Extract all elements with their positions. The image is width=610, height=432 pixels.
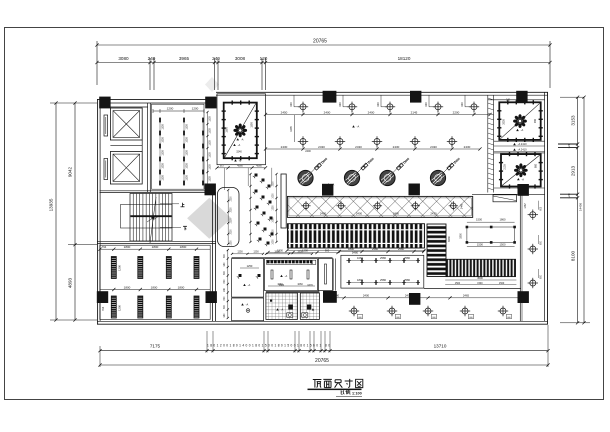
svg-text:1206: 1206 <box>118 305 122 311</box>
svg-text:2580: 2580 <box>372 247 378 251</box>
svg-text:1800: 1800 <box>277 248 283 252</box>
svg-text:1060: 1060 <box>357 256 363 260</box>
svg-text:240: 240 <box>148 56 156 61</box>
svg-text:2400: 2400 <box>305 150 311 153</box>
svg-text:1590: 1590 <box>226 127 229 133</box>
svg-text:1250: 1250 <box>253 251 259 254</box>
svg-text:-A: -A <box>332 183 335 187</box>
svg-text:880: 880 <box>535 163 538 168</box>
svg-text:6230: 6230 <box>448 236 451 242</box>
svg-text:1060: 1060 <box>297 283 303 286</box>
svg-text:2430: 2430 <box>430 145 437 149</box>
svg-text:120: 120 <box>567 143 571 148</box>
svg-text:18120: 18120 <box>398 56 411 61</box>
svg-text:2400: 2400 <box>320 211 327 215</box>
svg-text:2000: 2000 <box>503 119 506 125</box>
svg-text:1860: 1860 <box>500 218 506 222</box>
svg-text:2430: 2430 <box>281 145 288 149</box>
svg-text:1300: 1300 <box>209 164 212 170</box>
svg-text:600: 600 <box>377 102 380 107</box>
svg-text:2430: 2430 <box>464 145 471 149</box>
svg-text:1300: 1300 <box>209 152 212 158</box>
svg-text:20765: 20765 <box>313 39 327 45</box>
svg-text:-A: -A <box>246 303 249 307</box>
svg-text:600: 600 <box>425 102 428 107</box>
svg-text:900: 900 <box>325 248 330 252</box>
svg-text:2580: 2580 <box>404 256 410 260</box>
svg-text:2200: 2200 <box>453 110 460 114</box>
svg-text:1000: 1000 <box>273 193 275 199</box>
svg-text:1500: 1500 <box>476 218 482 222</box>
svg-text:600: 600 <box>461 102 464 107</box>
svg-text:8100: 8100 <box>571 250 576 261</box>
svg-text:1300: 1300 <box>209 128 212 134</box>
svg-text:2430: 2430 <box>318 145 325 149</box>
svg-text:3240: 3240 <box>236 151 242 154</box>
svg-text:1000: 1000 <box>273 217 275 223</box>
svg-text:917: 917 <box>220 164 225 168</box>
svg-text:3008: 3008 <box>235 56 246 61</box>
svg-text:2400: 2400 <box>324 110 331 114</box>
svg-text:9042: 9042 <box>68 166 73 177</box>
svg-text:1000: 1000 <box>186 137 189 143</box>
svg-text:1300: 1300 <box>273 205 275 211</box>
svg-text:1000: 1000 <box>273 239 275 245</box>
svg-text:1800: 1800 <box>460 233 463 239</box>
svg-text:2465: 2465 <box>463 293 470 297</box>
svg-text:1000: 1000 <box>162 137 165 143</box>
svg-text:1300: 1300 <box>162 124 165 130</box>
svg-text:4560: 4560 <box>256 164 262 168</box>
svg-text:-A: -A <box>248 283 251 287</box>
svg-text:120: 120 <box>260 56 268 61</box>
svg-text:2580: 2580 <box>398 247 404 251</box>
svg-text:2400: 2400 <box>393 211 400 215</box>
svg-text:1000: 1000 <box>186 163 189 169</box>
svg-text:1800: 1800 <box>178 285 185 289</box>
svg-text:-A: -A <box>357 125 360 129</box>
svg-text:2103: 2103 <box>504 164 507 170</box>
svg-text:7175: 7175 <box>150 344 161 349</box>
svg-text:1670: 1670 <box>307 284 313 287</box>
svg-text:1200: 1200 <box>302 248 308 252</box>
svg-text:2410: 2410 <box>517 97 523 100</box>
svg-text:1800: 1800 <box>124 245 131 249</box>
svg-text:1300: 1300 <box>209 176 212 182</box>
svg-text:1500: 1500 <box>477 282 483 285</box>
svg-text:2400: 2400 <box>356 211 363 215</box>
svg-text:2450: 2450 <box>281 110 288 114</box>
svg-text:1300: 1300 <box>273 181 275 187</box>
svg-text:1300: 1300 <box>186 124 189 130</box>
svg-text:2580: 2580 <box>380 256 386 260</box>
svg-text:4560: 4560 <box>237 164 243 168</box>
svg-text:-A: -A <box>241 137 244 141</box>
svg-text:1800: 1800 <box>348 247 354 251</box>
svg-text:900: 900 <box>534 118 537 123</box>
svg-text:-A: -A <box>521 128 524 132</box>
svg-text:1200: 1200 <box>192 107 199 111</box>
svg-text:1300: 1300 <box>186 150 189 156</box>
svg-text:3080: 3080 <box>118 56 129 61</box>
svg-text:14406: 14406 <box>579 202 583 211</box>
svg-text:1200: 1200 <box>167 107 174 111</box>
svg-text:2580: 2580 <box>380 278 386 282</box>
svg-text:3965: 3965 <box>179 56 190 61</box>
svg-text:1300: 1300 <box>162 150 165 156</box>
svg-text:1000: 1000 <box>162 163 165 169</box>
svg-text:794: 794 <box>102 245 107 249</box>
svg-text:2430: 2430 <box>355 145 362 149</box>
svg-text:600: 600 <box>339 102 342 107</box>
svg-text:1206: 1206 <box>118 265 122 271</box>
svg-text:1000: 1000 <box>230 207 232 213</box>
svg-text:1800: 1800 <box>357 278 363 282</box>
svg-text:1500: 1500 <box>500 242 506 246</box>
svg-text:1300: 1300 <box>186 175 189 181</box>
svg-text:3153: 3153 <box>571 115 576 126</box>
svg-text:2913: 2913 <box>571 165 576 176</box>
svg-text:-B: -B <box>239 159 242 163</box>
svg-text:2400: 2400 <box>405 293 412 297</box>
svg-text:1300: 1300 <box>209 116 212 122</box>
svg-text:120: 120 <box>567 193 571 198</box>
svg-text:2400: 2400 <box>368 110 375 114</box>
svg-text:1295: 1295 <box>290 126 293 132</box>
svg-text:1487: 1487 <box>524 203 527 209</box>
svg-text:600: 600 <box>290 102 293 107</box>
svg-text:1300: 1300 <box>209 140 212 146</box>
svg-text:1000: 1000 <box>230 229 232 235</box>
svg-text:13935: 13935 <box>49 198 54 211</box>
svg-text:240: 240 <box>506 99 511 102</box>
svg-text:2145: 2145 <box>411 110 418 114</box>
svg-text:240: 240 <box>212 56 220 61</box>
svg-text:1680: 1680 <box>279 284 285 287</box>
svg-text:1800: 1800 <box>152 245 159 249</box>
svg-text:2430: 2430 <box>393 145 400 149</box>
svg-text:1440: 1440 <box>461 203 464 209</box>
svg-text:1500: 1500 <box>477 242 483 246</box>
svg-text:-A: -A <box>281 308 284 312</box>
svg-text:13710: 13710 <box>434 344 447 349</box>
svg-text:1250: 1250 <box>237 251 243 254</box>
svg-text:1250: 1250 <box>247 264 253 268</box>
svg-text:1340: 1340 <box>333 293 340 297</box>
svg-text:1300: 1300 <box>230 240 232 246</box>
svg-text:2580: 2580 <box>404 278 410 282</box>
svg-text:1500: 1500 <box>455 282 461 285</box>
svg-text:1300: 1300 <box>162 175 165 181</box>
svg-text:-A 2410: -A 2410 <box>518 142 527 146</box>
svg-text:1800: 1800 <box>180 245 187 249</box>
svg-text:1800: 1800 <box>151 285 158 289</box>
svg-text:2400: 2400 <box>363 293 370 297</box>
svg-text:2430: 2430 <box>430 211 437 215</box>
svg-text:1500: 1500 <box>499 282 505 285</box>
svg-text:-A: -A <box>285 274 288 278</box>
svg-text:794: 794 <box>101 306 105 311</box>
svg-text:-A: -A <box>238 143 241 147</box>
svg-text:1300: 1300 <box>230 218 232 224</box>
svg-text:20765: 20765 <box>315 358 329 364</box>
svg-text:1800: 1800 <box>124 285 131 289</box>
svg-text:1300: 1300 <box>230 196 232 202</box>
svg-text:-A 2410: -A 2410 <box>518 148 527 152</box>
svg-text:4500: 4500 <box>477 276 483 280</box>
svg-text:1590: 1590 <box>251 122 254 128</box>
svg-text:-A: -A <box>521 177 524 181</box>
svg-text:1:100: 1:100 <box>352 391 362 395</box>
svg-text:4893: 4893 <box>68 277 73 288</box>
